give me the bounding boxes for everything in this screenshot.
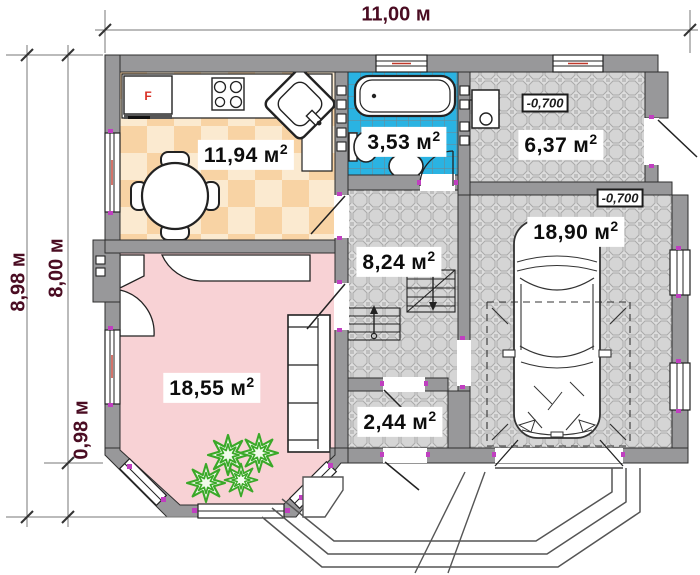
driveway-lines	[415, 472, 485, 573]
entrance-landing	[303, 477, 343, 517]
bathtub	[355, 76, 455, 116]
floor-plan-page: 11,00 м 8,98 м 8,00 м 0,98 м F 11,94м2 3…	[0, 0, 700, 575]
plant-shrub	[187, 464, 225, 502]
window-top-boiler	[553, 55, 603, 72]
window-top-bathroom	[376, 55, 427, 72]
garage-gate-opening	[495, 448, 623, 463]
wall-boiler-garage	[470, 182, 672, 195]
stove	[212, 78, 244, 110]
wall-kitchen-living	[105, 240, 335, 253]
boiler-exterior-door-opening	[644, 118, 659, 165]
plant-shrub	[240, 434, 278, 472]
car-top-view	[503, 220, 611, 438]
window-bay-bottom	[198, 504, 284, 518]
window-kitchen-left	[105, 133, 120, 212]
sofa	[288, 315, 330, 452]
window-garage-right-2	[670, 363, 690, 410]
fridge	[124, 76, 172, 119]
boiler-door-leaf	[658, 120, 697, 157]
vestibule-door-opening	[383, 377, 425, 392]
kitchen-door-opening	[334, 195, 349, 238]
entrance-door-leaf	[385, 462, 419, 490]
garage-passage-opening	[457, 340, 471, 386]
floor-plan-drawing	[0, 0, 700, 575]
entrance-door-opening	[383, 448, 427, 463]
window-garage-right-1	[670, 250, 690, 295]
wall-garage-right	[672, 195, 688, 460]
window-living-left	[105, 330, 120, 404]
toilet	[349, 132, 378, 162]
living-door-opening	[334, 283, 349, 330]
plant-shrub	[225, 464, 258, 497]
wall-boiler-right-thick	[645, 72, 668, 118]
wall-vestibule-right	[448, 391, 470, 448]
bath-door-opening	[420, 174, 455, 191]
